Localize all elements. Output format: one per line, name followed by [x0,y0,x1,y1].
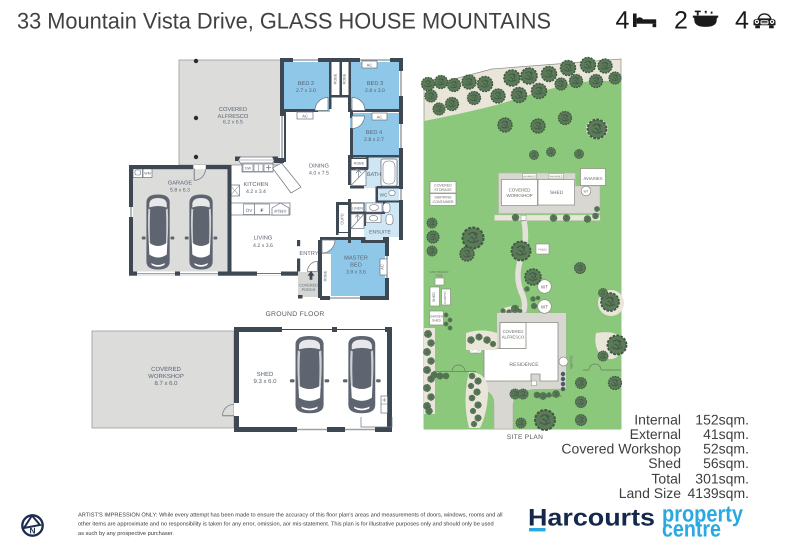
svg-text:OV: OV [246,208,254,213]
svg-text:AVIARIES: AVIARIES [583,176,602,181]
svg-text:as such by any prospective pur: as such by any prospective purchaser. [78,530,174,537]
svg-text:CUPD: CUPD [340,213,345,224]
svg-text:centre: centre [662,516,721,542]
svg-text:COVERED: COVERED [434,184,452,188]
svg-text:COMPST: COMPST [443,291,447,304]
svg-text:4.2 x 3.6: 4.2 x 3.6 [253,243,273,249]
svg-text:AC: AC [302,113,308,118]
svg-text:DW: DW [245,167,252,171]
svg-text:AVIARIES: AVIARIES [523,175,536,179]
svg-text:ROBE: ROBE [324,270,328,281]
svg-text:3.9 x 3.6: 3.9 x 3.6 [346,270,366,276]
svg-text:ROBE: ROBE [343,73,347,84]
svg-text:AC: AC [367,62,373,67]
svg-text:BED 2: BED 2 [298,81,314,87]
svg-text:LINEN: LINEN [352,206,363,210]
svg-text:CONTAINER: CONTAINER [433,200,454,204]
svg-text:COVERED: COVERED [219,107,247,113]
svg-text:DINING: DINING [309,164,329,170]
svg-text:ENTRY: ENTRY [299,251,318,257]
svg-text:WM: WM [144,172,150,176]
svg-text:Shed: Shed [648,455,681,471]
svg-text:WT: WT [541,285,548,290]
svg-text:5.8 x 6.3: 5.8 x 6.3 [170,188,190,194]
svg-text:RESIDENCE: RESIDENCE [509,362,539,368]
svg-text:KITCHEN: KITCHEN [244,182,269,188]
svg-text:ARTIST'S IMPRESSION ONLY: Whil: ARTIST'S IMPRESSION ONLY: While every at… [78,512,503,519]
svg-text:COVERED: COVERED [151,366,181,373]
svg-text:8.7 x 6.0: 8.7 x 6.0 [154,380,178,387]
svg-text:56sqm.: 56sqm. [703,455,749,471]
svg-text:WT: WT [584,190,589,194]
svg-text:9.3 x 6.0: 9.3 x 6.0 [253,378,277,385]
svg-text:4.0 x 7.5: 4.0 x 7.5 [309,171,329,177]
svg-text:WT: WT [541,305,548,310]
svg-text:4.2 x 3.4: 4.2 x 3.4 [246,189,266,195]
svg-text:BED 3: BED 3 [367,81,383,87]
svg-text:SHED: SHED [432,292,436,302]
svg-text:ENSUITE: ENSUITE [369,230,391,236]
svg-text:AC: AC [377,114,383,119]
svg-text:WORKSHOP: WORKSHOP [148,373,184,380]
svg-text:N: N [29,526,35,536]
svg-text:PRESS: PRESS [538,249,547,252]
svg-text:BED 4: BED 4 [366,130,382,136]
svg-text:PTRY: PTRY [274,209,286,214]
svg-text:WORKSHOP: WORKSHOP [506,193,532,198]
svg-text:BATH: BATH [367,172,381,178]
svg-text:COVERED: COVERED [509,188,531,193]
svg-text:F: F [261,208,264,214]
svg-text:SEPTIC: SEPTIC [570,355,574,369]
svg-text:SHED: SHED [257,371,274,378]
svg-text:TANK: TANK [435,274,443,278]
svg-text:Land Size: Land Size [619,485,681,501]
svg-text:2.8 x 2.7: 2.8 x 2.7 [364,137,384,143]
svg-text:COVERED: COVERED [503,329,524,334]
svg-text:ALFRESCO: ALFRESCO [502,335,525,340]
svg-text:BED: BED [350,263,362,269]
svg-text:WC: WC [380,193,388,198]
svg-text:4139sqm.: 4139sqm. [688,485,749,501]
svg-text:COVERED: COVERED [299,284,318,288]
svg-text:MASTER: MASTER [344,256,368,262]
svg-text:4: 4 [735,7,749,35]
svg-text:Harcourts: Harcourts [528,505,655,532]
svg-text:2: 2 [674,7,688,35]
svg-text:GROUND FLOOR: GROUND FLOOR [265,311,324,318]
svg-text:AVIARIES: AVIARIES [550,175,563,179]
svg-text:GARAGE: GARAGE [168,181,193,187]
svg-text:SHIPPING: SHIPPING [434,196,451,200]
svg-text:PORCH: PORCH [302,288,316,292]
svg-text:SHED: SHED [550,190,564,196]
svg-text:ROBE: ROBE [334,73,338,84]
svg-text:6.2 x 6.5: 6.2 x 6.5 [223,120,243,126]
svg-text:SITE PLAN: SITE PLAN [507,434,543,441]
svg-text:4: 4 [616,7,630,35]
svg-text:other items are approximate an: other items are approximate and no respo… [78,521,494,528]
svg-text:2.7 x 3.0: 2.7 x 3.0 [296,88,316,94]
svg-text:STORAGE: STORAGE [434,188,452,192]
svg-text:SHED: SHED [432,319,442,323]
svg-text:LIVING: LIVING [254,236,273,242]
svg-text:ROBE: ROBE [354,162,365,166]
svg-text:33 Mountain Vista Drive, GLASS: 33 Mountain Vista Drive, GLASS HOUSE MOU… [17,9,551,34]
svg-text:AC: AC [380,264,385,270]
svg-text:2.8 x 3.0: 2.8 x 3.0 [365,88,385,94]
